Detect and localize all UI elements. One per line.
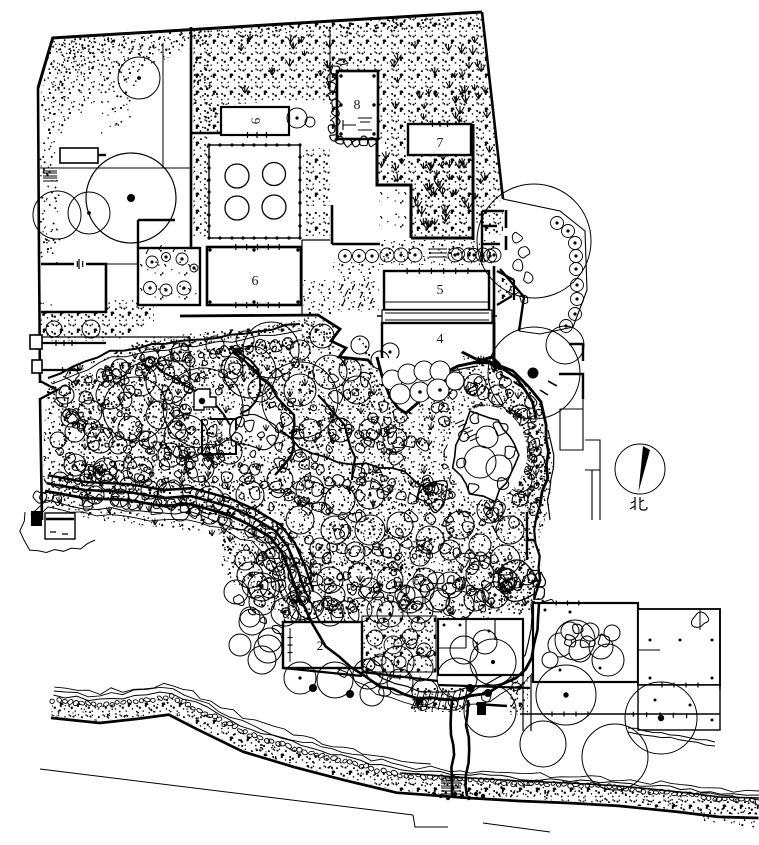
svg-text:8: 8 <box>354 98 361 113</box>
svg-text:4: 4 <box>437 332 444 347</box>
svg-text:6: 6 <box>248 117 263 124</box>
svg-text:3: 3 <box>217 431 224 446</box>
svg-text:6: 6 <box>252 274 259 289</box>
svg-text:5: 5 <box>437 283 444 298</box>
svg-text:2: 2 <box>317 638 324 653</box>
svg-text:7: 7 <box>437 136 444 151</box>
svg-text:1: 1 <box>474 638 481 653</box>
